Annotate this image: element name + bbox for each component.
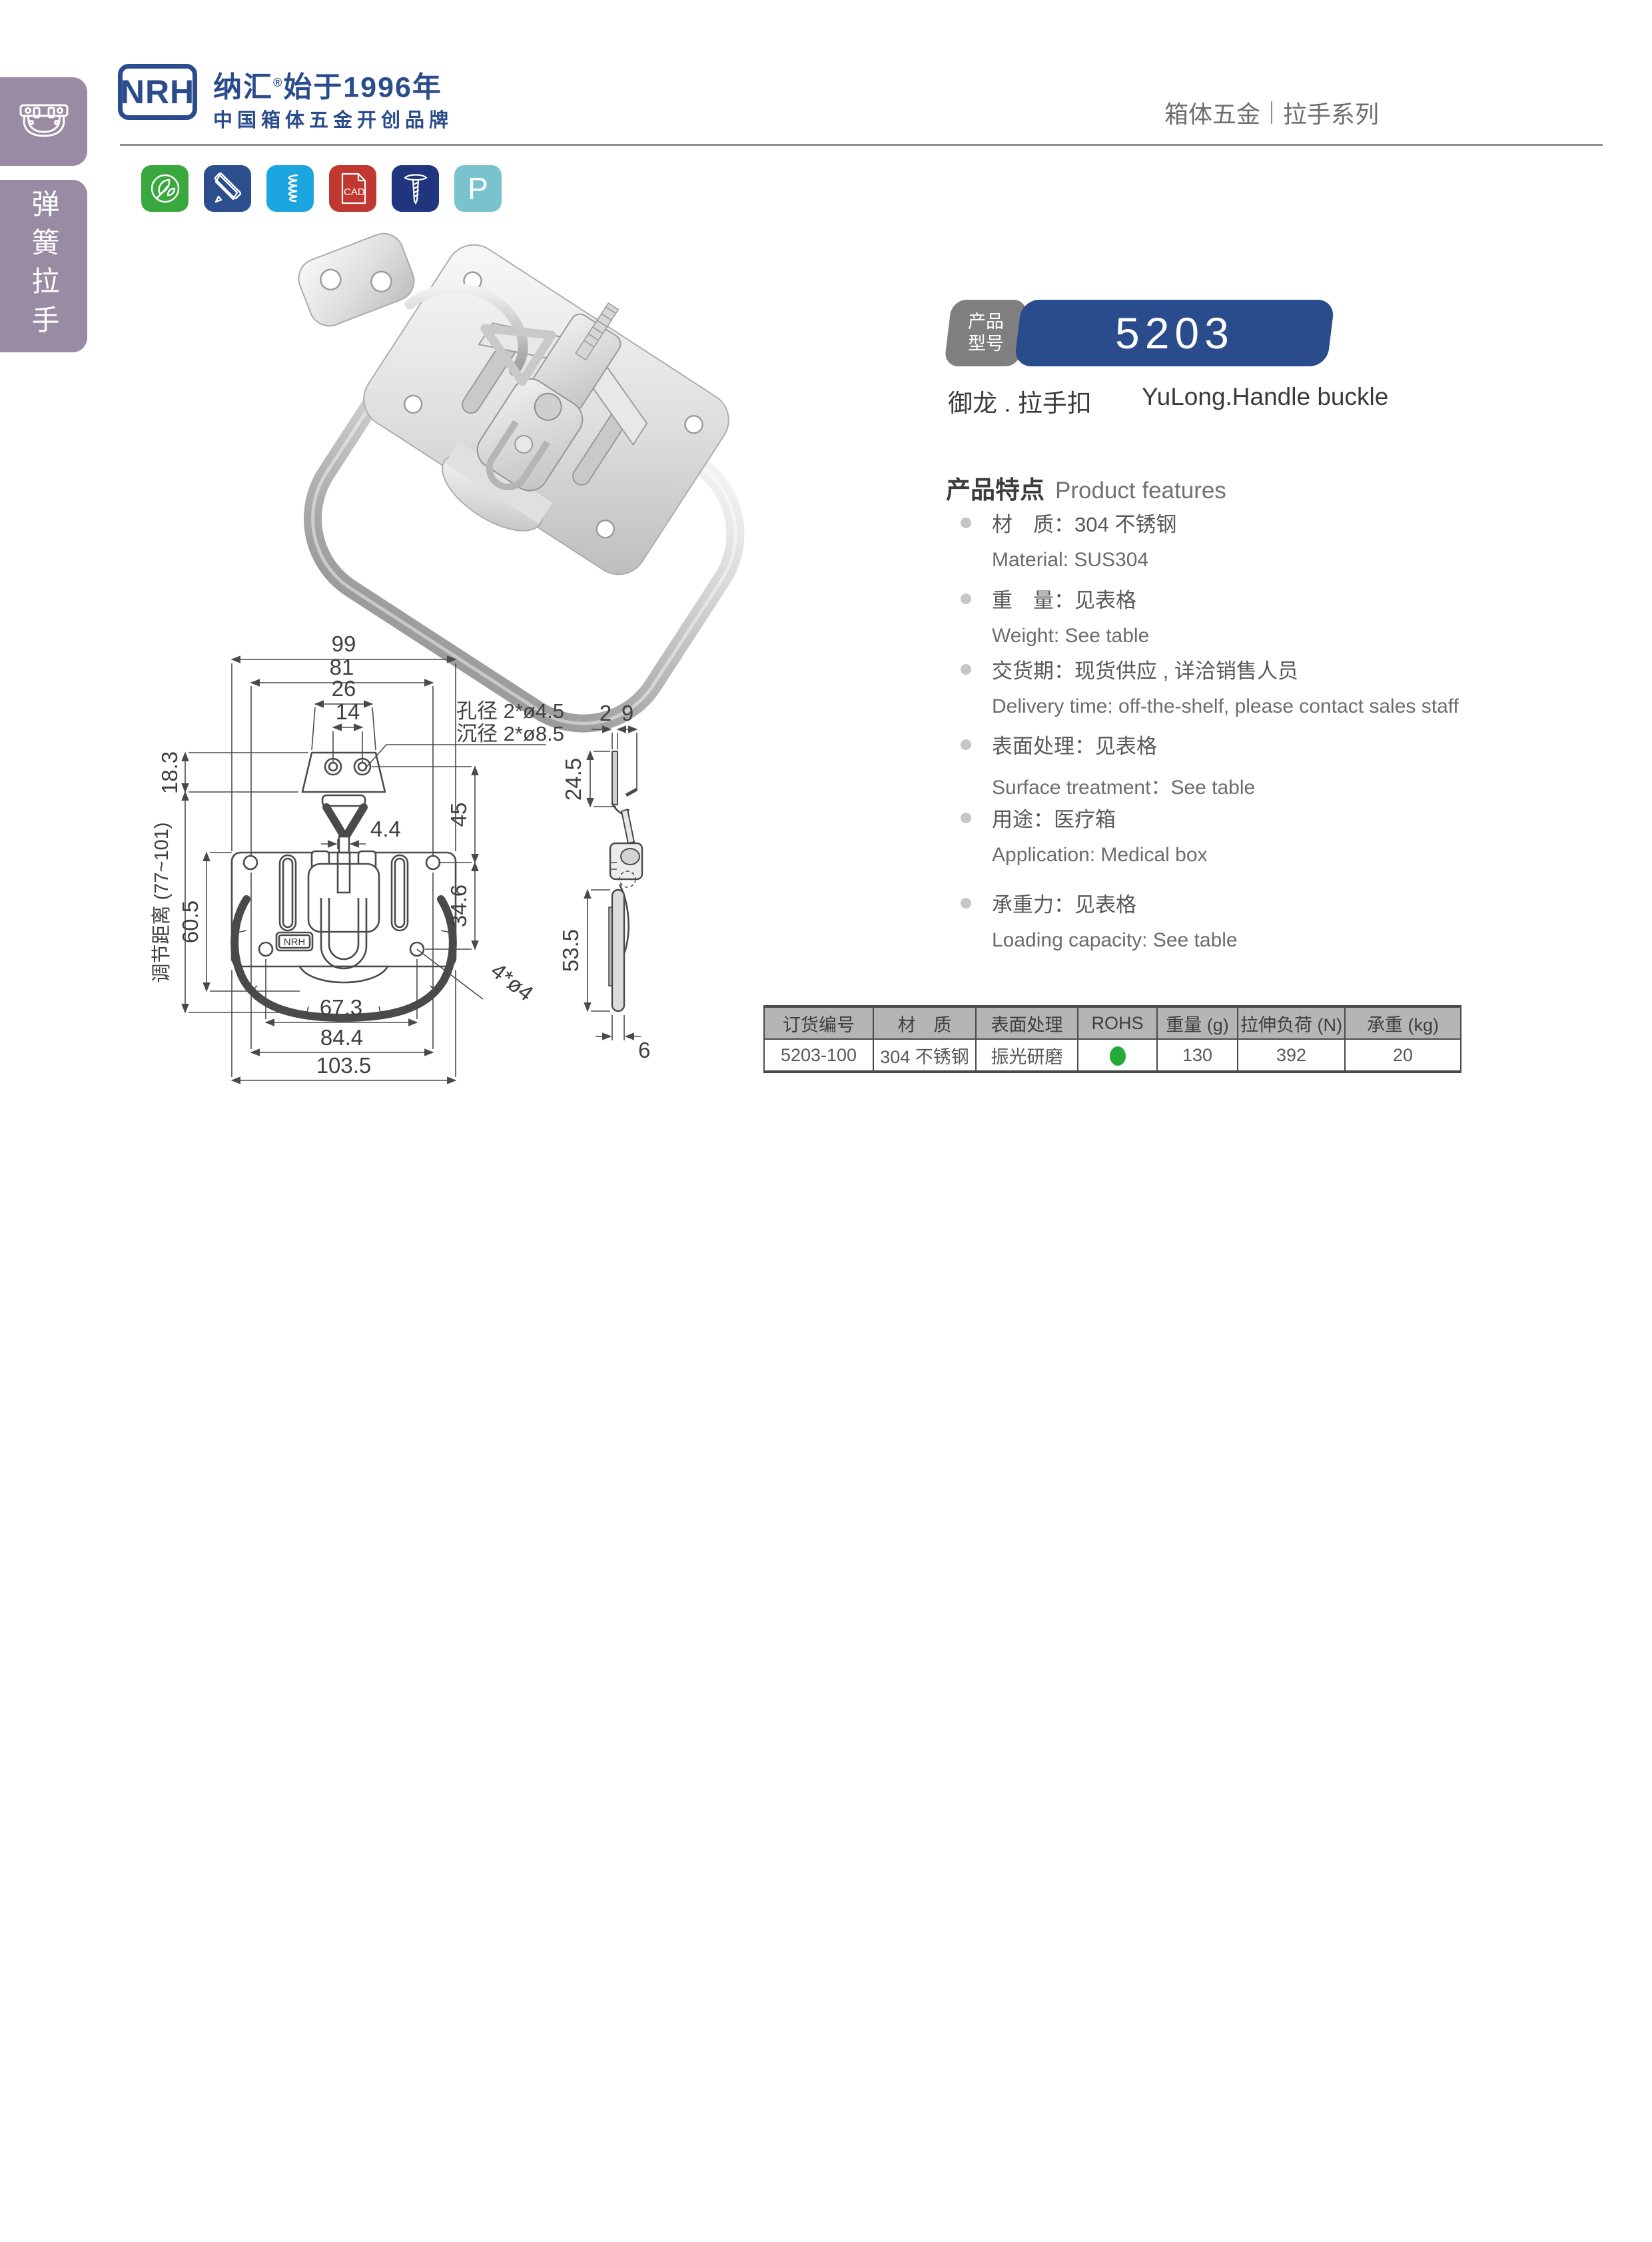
feature-delivery: 交货期：现货供应 , 详洽销售人员 Delivery time: off-the… [946,654,1545,718]
col-tensile-load: 拉伸负荷 (N) [1238,1006,1345,1039]
model-tag: 产品 型号 [944,300,1028,366]
dim-9: 9 [621,701,633,725]
dim-14: 14 [336,699,360,724]
mounting-plate [293,228,420,332]
breadcrumb-series: 拉手系列 [1283,95,1379,130]
bullet-icon [961,664,971,675]
bullet-icon [961,518,971,528]
spring-icon [266,165,314,212]
nrh-stamp: NRH [284,936,306,948]
header-divider-line [120,144,1603,146]
cad-file-icon: CAD [329,165,376,212]
product-name-en: YuLong.Handle buckle [1142,383,1388,411]
dim-53-5: 53.5 [558,929,583,972]
screw-icon [392,165,439,212]
breadcrumb-divider [1271,101,1272,124]
feature-surface: 表面处理：见表格 Surface treatment：See table [946,729,1545,800]
brand-block: 纳汇®始于1996年 中国箱体五金开创品牌 [213,67,453,133]
col-weight: 重量 (g) [1157,1006,1238,1039]
note-sink-dia: 沉径 2*ø8.5 [456,722,564,745]
product-name-zh: 御龙 . 拉手扣 [948,383,1092,419]
breadcrumb: 箱体五金 拉手系列 [1164,95,1379,130]
chest-handle-icon [18,103,70,141]
col-rohs: ROHS [1078,1006,1157,1039]
feature-weight: 重 量：见表格 Weight: See table [946,583,1545,647]
registered-mark: ® [273,76,283,89]
nrh-logo-text: NRH [121,73,195,111]
note-4-holes: 4*ø4 [486,958,538,1006]
nrh-logo: NRH [118,64,197,120]
col-material: 材 质 [873,1006,976,1039]
cell-capacity: 20 [1345,1039,1461,1072]
model-number: 5203 [1115,308,1234,358]
breadcrumb-category: 箱体五金 [1164,95,1260,130]
bullet-icon [961,898,971,909]
brand-slogan-line2: 中国箱体五金开创品牌 [213,105,453,133]
technical-drawing: NRH 99 81 26 14 孔径 2*ø4.5 沉径 2*ø8.5 18.3… [120,213,879,1092]
dim-4-4: 4.4 [370,817,401,841]
feature-loading: 承重力：见表格 Loading capacity: See table [946,888,1545,952]
col-capacity: 承重 (kg) [1345,1006,1461,1039]
cell-material: 304 不锈钢 [873,1039,976,1072]
letter-p-icon: P [454,165,502,212]
dim-18-3: 18.3 [157,751,182,794]
cell-tensile-load: 392 [1238,1039,1345,1072]
col-surface: 表面处理 [976,1006,1078,1039]
bullet-icon [961,593,971,604]
bullet-icon [961,813,971,823]
dim-67-3: 67.3 [320,995,362,1020]
dim-24-5: 24.5 [561,758,586,801]
design-tools-icon [204,165,251,212]
cell-weight: 130 [1157,1039,1238,1072]
note-hole-dia: 孔径 2*ø4.5 [456,699,564,723]
feature-application: 用途：医疗箱 Application: Medical box [946,803,1545,867]
cell-surface: 振光研磨 [976,1039,1078,1072]
sidebar-tab-spring-handle[interactable]: 弹簧拉手 [0,180,87,352]
dim-45: 45 [446,803,471,827]
side-view-dimensions: 2 9 24.5 53.5 6 [558,701,650,1062]
bullet-icon [961,739,971,750]
dim-2: 2 [600,701,612,725]
dim-adjust-distance: 调节距离 (77~101) [151,823,173,983]
dim-6: 6 [638,1038,650,1062]
certification-icons: CAD P [141,165,502,212]
feature-material: 材 质：304 不锈钢 Material: SUS304 [946,508,1545,571]
model-tag-text: 产品 型号 [968,311,1004,355]
model-number-badge: 5203 [1014,300,1335,366]
dim-103-5: 103.5 [316,1053,372,1078]
dim-26: 26 [332,676,356,701]
dim-84-4: 84.4 [320,1025,363,1050]
dim-99: 99 [332,631,356,656]
dim-34-6: 34.6 [446,885,471,927]
cell-rohs [1078,1039,1157,1072]
brand-slogan-line1: 纳汇®始于1996年 [213,67,453,103]
features-title: 产品特点 Product features [946,470,1545,506]
features-title-zh: 产品特点 [946,470,1044,506]
features-title-en: Product features [1055,478,1226,504]
features-section: 产品特点 Product features 材 质：304 不锈钢 Materi… [946,470,1545,506]
rohs-pass-dot [1110,1046,1126,1066]
side-view [609,751,642,1011]
sidebar-tab-handle-category[interactable] [0,77,87,166]
sidebar-tab-label: 弹簧拉手 [23,189,64,344]
catalog-page: { "header": { "logo": "NRH", "brand_line… [0,0,1652,2242]
p-label: P [468,173,488,204]
eco-leaf-icon [141,165,189,212]
dim-60-5: 60.5 [178,901,203,943]
cad-label: CAD [344,187,365,198]
